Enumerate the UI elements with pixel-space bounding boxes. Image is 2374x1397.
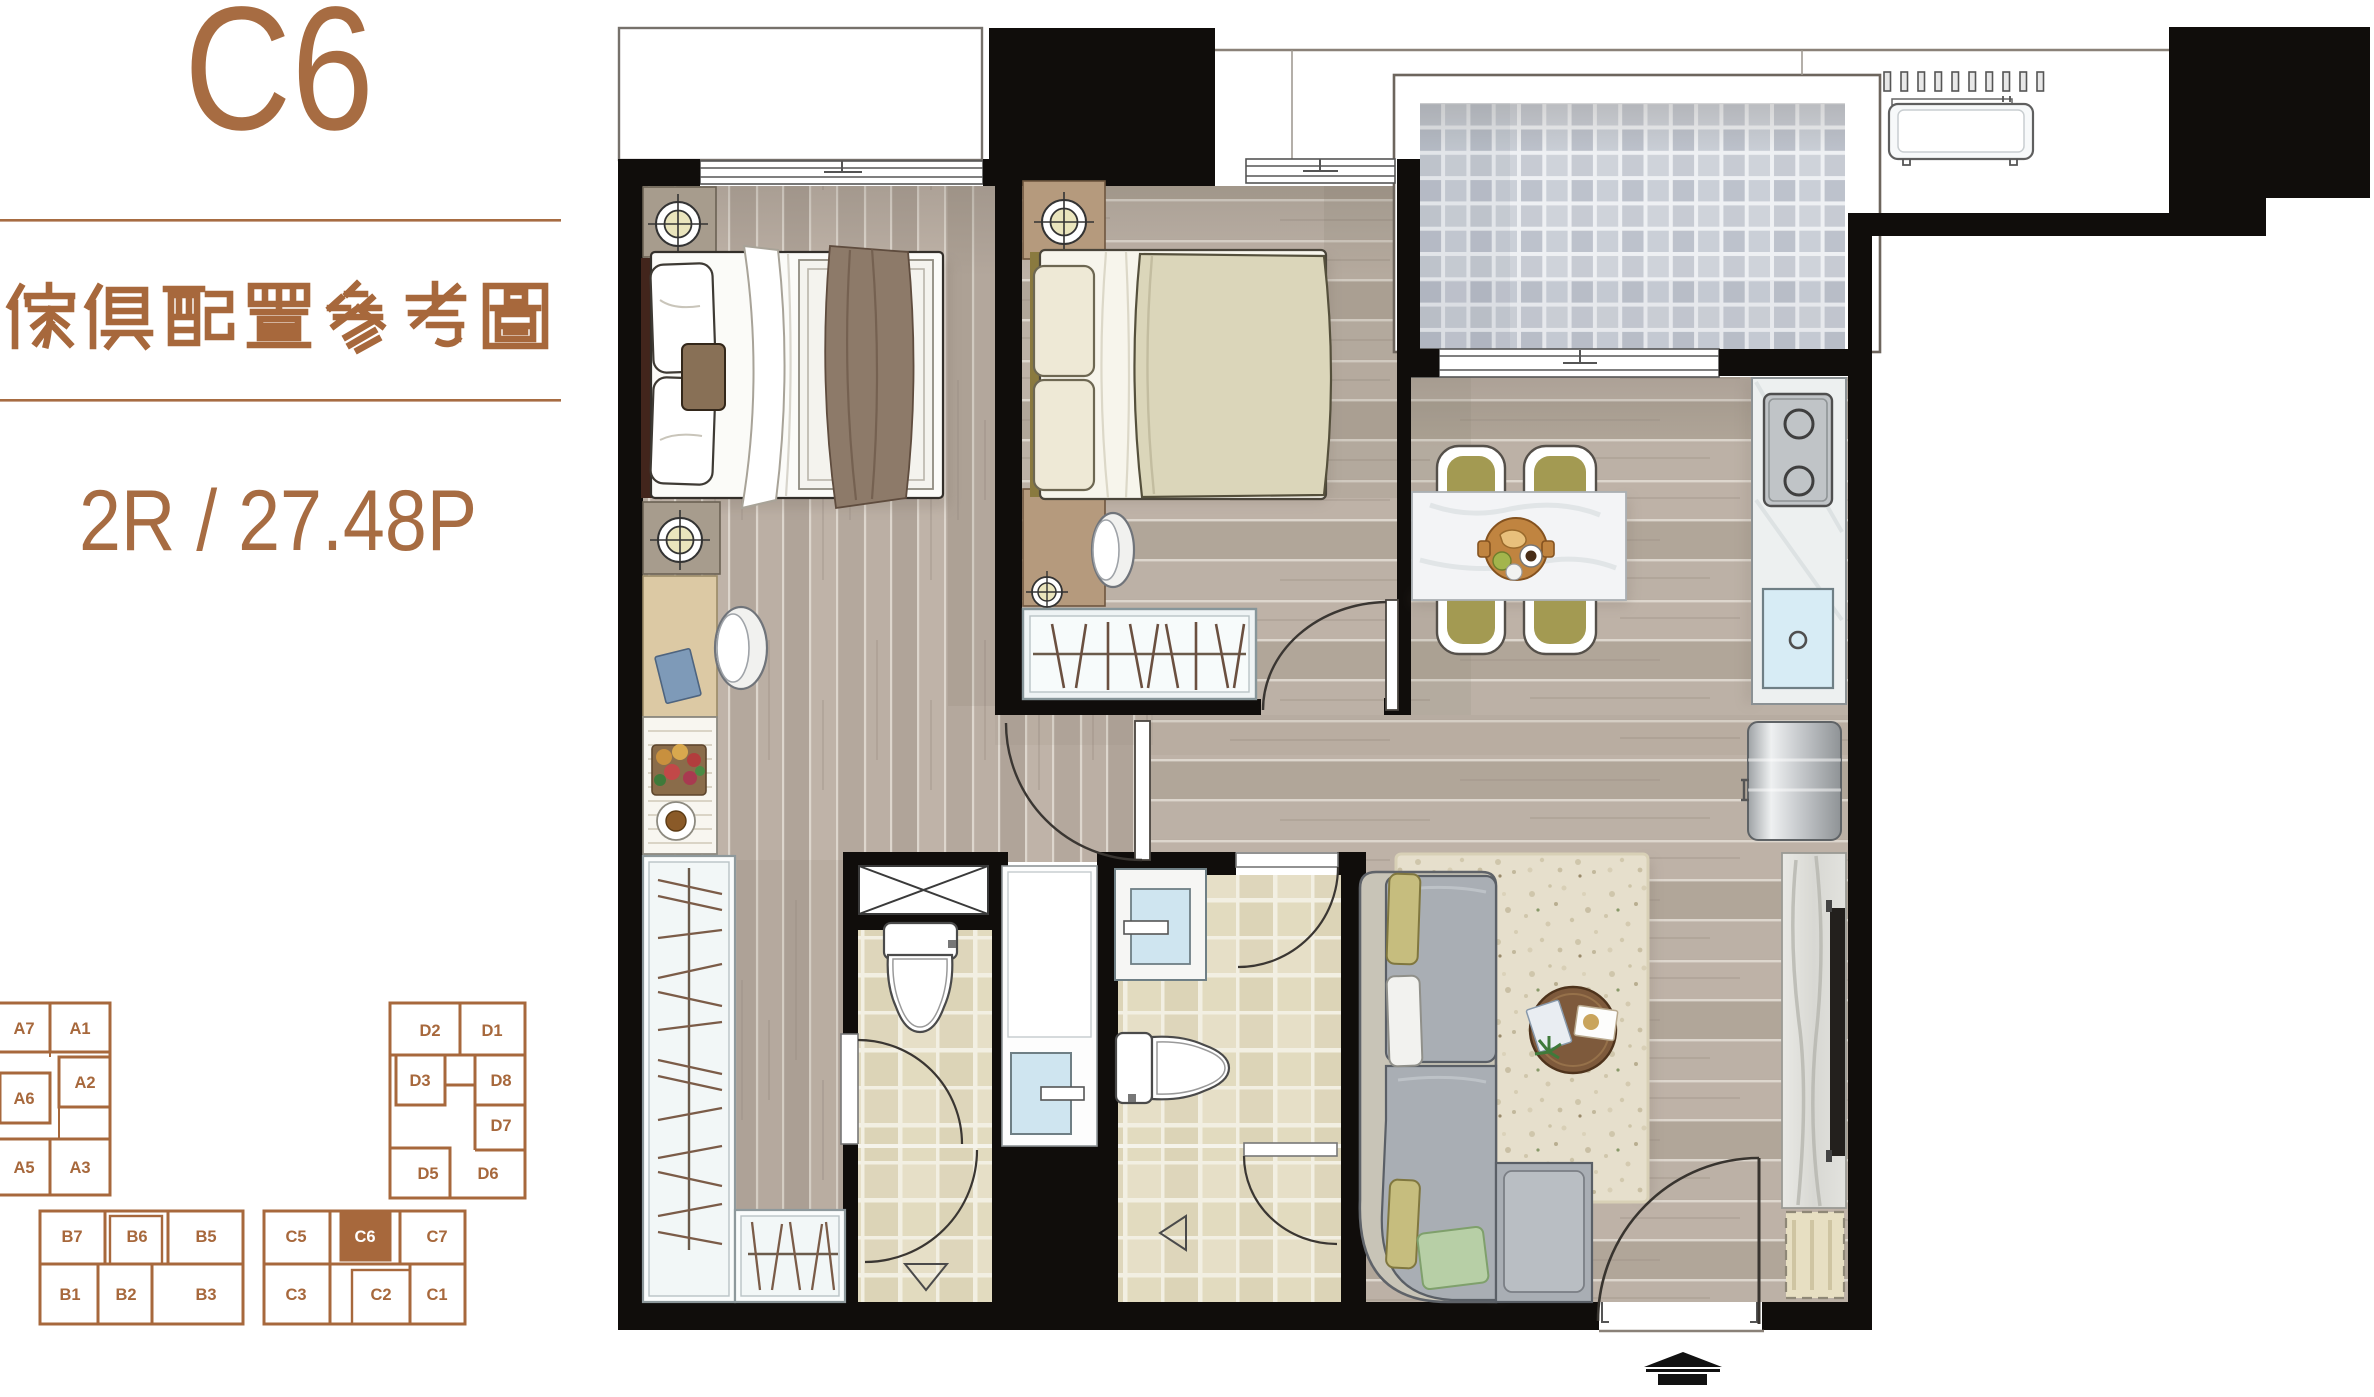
svg-text:D8: D8 xyxy=(490,1072,511,1090)
svg-text:D3: D3 xyxy=(409,1072,430,1090)
svg-text:C5: C5 xyxy=(285,1228,306,1246)
svg-text:D5: D5 xyxy=(417,1165,438,1183)
svg-text:B3: B3 xyxy=(195,1286,216,1304)
svg-text:2R / 27.48P: 2R / 27.48P xyxy=(79,473,477,569)
svg-text:A6: A6 xyxy=(13,1090,34,1108)
svg-text:B6: B6 xyxy=(126,1228,147,1246)
svg-text:C6: C6 xyxy=(184,0,374,167)
svg-text:A3: A3 xyxy=(69,1159,90,1177)
svg-text:B1: B1 xyxy=(59,1286,80,1304)
svg-text:A5: A5 xyxy=(13,1159,34,1177)
svg-text:B7: B7 xyxy=(61,1228,82,1246)
svg-text:A2: A2 xyxy=(74,1074,95,1092)
svg-text:D2: D2 xyxy=(419,1022,440,1040)
svg-text:D6: D6 xyxy=(477,1165,498,1183)
svg-text:D1: D1 xyxy=(481,1022,502,1040)
svg-text:C2: C2 xyxy=(370,1286,391,1304)
svg-text:C3: C3 xyxy=(285,1286,306,1304)
svg-text:C6: C6 xyxy=(354,1228,375,1246)
svg-text:C1: C1 xyxy=(426,1286,447,1304)
svg-text:B5: B5 xyxy=(195,1228,216,1246)
svg-text:B2: B2 xyxy=(115,1286,136,1304)
svg-text:C7: C7 xyxy=(426,1228,447,1246)
svg-text:A1: A1 xyxy=(69,1020,90,1038)
svg-text:D7: D7 xyxy=(490,1117,511,1135)
svg-text:A7: A7 xyxy=(13,1020,34,1038)
